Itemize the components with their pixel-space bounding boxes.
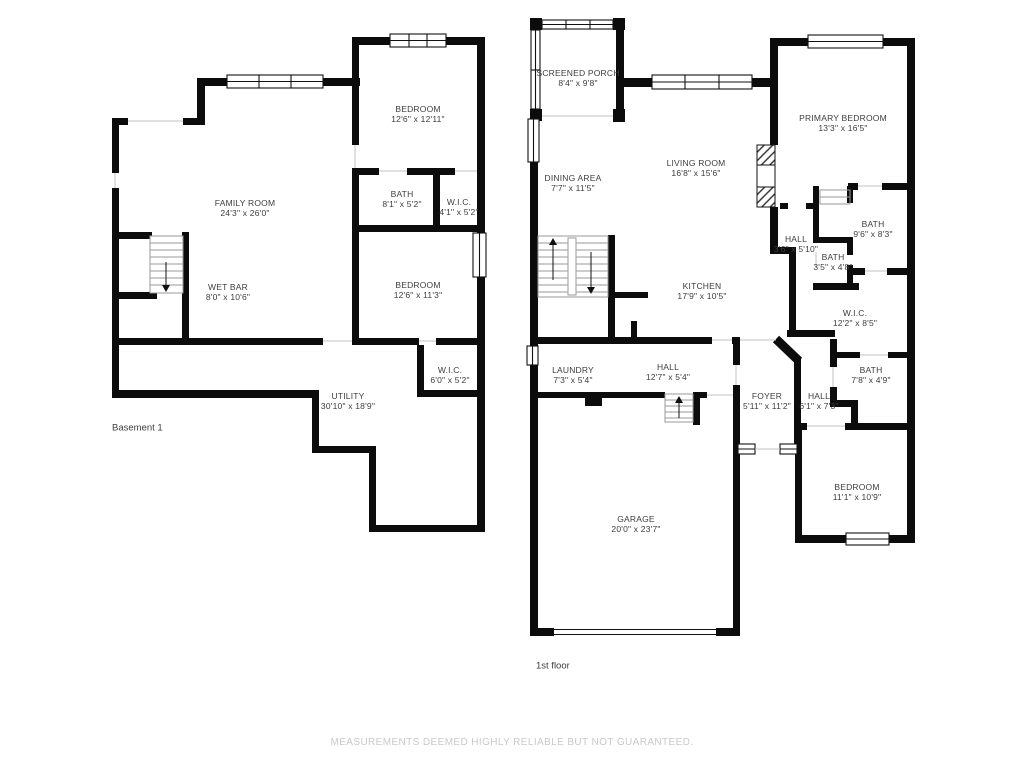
fireplace-icon [757,145,775,207]
room-name: BATH [813,252,852,262]
room-label-primary-bedroom: PRIMARY BEDROOM 13'3" x 16'5" [799,113,887,133]
floorplan-page: FAMILY ROOM 24'3" x 26'0" BEDROOM 12'6" … [0,0,1024,768]
room-dims: 7'8" x 4'9" [851,375,890,385]
room-dims: 6'1" x 7'3" [799,401,838,411]
room-label-laundry: LAUNDRY 7'3" x 5'4" [552,365,594,385]
room-label-kitchen: KITCHEN 17'9" x 10'5" [677,281,726,301]
floor-name-first-floor: 1st floor [536,661,570,672]
room-name: BEDROOM [391,104,445,114]
room-name: DINING AREA [545,173,602,183]
room-dims: 16'8" x 15'6" [667,168,726,178]
room-dims: 13'3" x 16'5" [799,123,887,133]
closet-shelves [820,190,850,204]
room-name: BATH [851,365,890,375]
room-label-basement-bedroom-2: BEDROOM 12'6" x 11'3" [394,280,443,300]
room-label-hall-2: HALL 12'7" x 5'4" [646,362,690,382]
room-label-garage: GARAGE 20'0" x 23'7" [611,514,660,534]
room-name: LIVING ROOM [667,158,726,168]
room-name: GARAGE [611,514,660,524]
room-label-basement-wic-2: W.I.C. 6'0" x 5'2" [430,365,469,385]
room-dims: 12'2" x 8'5" [833,318,877,328]
porch-screens [531,20,613,109]
room-name: BATH [853,219,892,229]
room-label-screened-porch: SCREENED PORCH 8'4" x 9'8" [536,68,619,88]
room-label-wet-bar: WET BAR 8'0" x 10'6" [206,282,250,302]
room-label-dining-area: DINING AREA 7'7" x 11'5" [545,173,602,193]
room-dims: 9'6" x 8'3" [853,229,892,239]
disclaimer-text: MEASUREMENTS DEEMED HIGHLY RELIABLE BUT … [0,737,1024,748]
room-dims: 4'1" x 5'2" [439,207,478,217]
room-dims: 30'10" x 18'9" [321,401,375,411]
room-label-basement-bedroom-1: BEDROOM 12'6" x 12'11" [391,104,445,124]
room-name: W.I.C. [439,197,478,207]
room-name: W.I.C. [430,365,469,375]
room-name: FAMILY ROOM [215,198,275,208]
room-label-small-bath: BATH 3'5" x 4'8" [813,252,852,272]
room-dims: 6'0" x 5'2" [430,375,469,385]
room-label-basement-bath: BATH 8'1" x 5'2" [382,189,421,209]
room-name: W.I.C. [833,308,877,318]
room-dims: 11'1" x 10'9" [833,492,882,502]
room-dims: 12'6" x 11'3" [394,290,443,300]
room-label-basement-wic-1: W.I.C. 4'1" x 5'2" [439,197,478,217]
floor-name-basement: Basement 1 [112,423,163,434]
first-floor-stairs-icon [538,236,608,297]
room-dims: 8'1" x 5'2" [382,199,421,209]
room-label-hall-1: HALL 3'6" x 5'10" [774,234,818,254]
room-label-first-floor-bedroom: BEDROOM 11'1" x 10'9" [833,482,882,502]
room-name: HALL [646,362,690,372]
room-label-primary-wic: W.I.C. 12'2" x 8'5" [833,308,877,328]
foyer-diagonal-wall [776,339,799,361]
room-name: WET BAR [206,282,250,292]
room-dims: 8'4" x 9'8" [536,78,619,88]
room-name: HALL [799,391,838,401]
room-dims: 3'6" x 5'10" [774,244,818,254]
room-dims: 5'11" x 11'2" [743,401,791,411]
hall-stairs-icon [665,394,693,422]
room-name: BATH [382,189,421,199]
room-name: UTILITY [321,391,375,401]
room-dims: 8'0" x 10'6" [206,292,250,302]
room-name: BEDROOM [833,482,882,492]
room-name: HALL [774,234,818,244]
room-dims: 7'7" x 11'5" [545,183,602,193]
room-name: BEDROOM [394,280,443,290]
room-dims: 24'3" x 26'0" [215,208,275,218]
room-label-primary-bath: BATH 9'6" x 8'3" [853,219,892,239]
garage-door [554,630,716,635]
basement-stairs-icon [150,236,183,293]
room-label-hall-3: HALL 6'1" x 7'3" [799,391,838,411]
room-name: FOYER [743,391,791,401]
room-dims: 7'3" x 5'4" [552,375,594,385]
room-name: LAUNDRY [552,365,594,375]
room-name: PRIMARY BEDROOM [799,113,887,123]
room-label-hall-bath: BATH 7'8" x 4'9" [851,365,890,385]
room-dims: 3'5" x 4'8" [813,262,852,272]
room-label-foyer: FOYER 5'11" x 11'2" [743,391,791,411]
room-name: SCREENED PORCH [536,68,619,78]
room-dims: 12'6" x 12'11" [391,114,445,124]
room-label-family-room: FAMILY ROOM 24'3" x 26'0" [215,198,275,218]
room-label-utility: UTILITY 30'10" x 18'9" [321,391,375,411]
room-dims: 20'0" x 23'7" [611,524,660,534]
room-dims: 12'7" x 5'4" [646,372,690,382]
room-name: KITCHEN [677,281,726,291]
room-label-living-room: LIVING ROOM 16'8" x 15'6" [667,158,726,178]
room-dims: 17'9" x 10'5" [677,291,726,301]
